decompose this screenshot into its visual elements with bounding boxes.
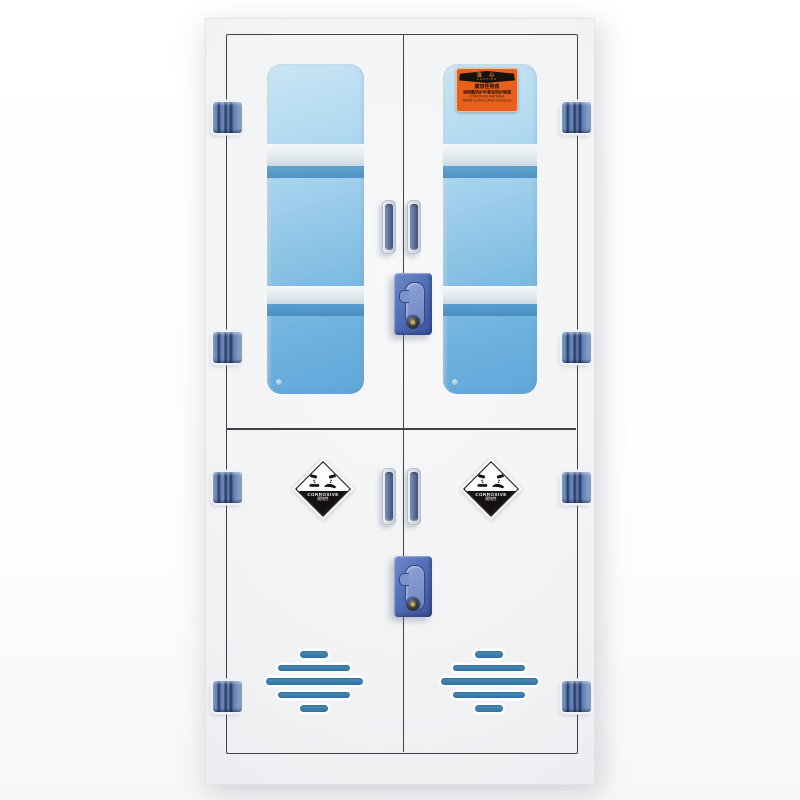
vent-slot	[441, 678, 538, 685]
vent-slot	[453, 665, 525, 672]
corrosive-hazard-label-left: CORROSIVE 腐蚀性	[292, 458, 354, 520]
shelf-edge	[267, 286, 364, 304]
hinge-left-3-icon	[213, 472, 242, 503]
shelf-edge	[443, 144, 537, 166]
shelf-shadow	[443, 304, 537, 316]
hinge-left-4-icon	[213, 681, 242, 712]
hinge-right-4-icon	[562, 681, 591, 712]
hinge-right-2-icon	[562, 332, 591, 363]
upper-right-door-window	[443, 64, 537, 394]
caution-banner: 当 心 CAUTION	[459, 71, 515, 83]
vent-slot	[475, 705, 503, 712]
lock-cylinder-icon	[407, 316, 420, 329]
lock-cylinder-icon	[407, 598, 420, 611]
caution-text-block: 腐蚀性物质 请佩戴防护手套和防护眼镜 CORROSIVE MATERIAL WE…	[459, 83, 515, 109]
hinge-left-1-icon	[213, 102, 242, 133]
caution-line-4: WEAR GLOVES AND GOGGLES	[457, 99, 517, 103]
shelf-shadow	[267, 166, 364, 178]
label-face: CORROSIVE 腐蚀性	[465, 463, 518, 516]
label-black-band: CORROSIVE 腐蚀性	[465, 491, 518, 516]
vent-slots-right	[439, 651, 539, 712]
shelf-edge	[267, 144, 364, 166]
vent-slot	[300, 705, 328, 712]
vent-slot	[278, 692, 350, 699]
upper-right-door-handle	[407, 200, 421, 254]
upper-left-door-window	[267, 64, 364, 394]
caution-warning-sticker: 当 心 CAUTION 腐蚀性物质 请佩戴防护手套和防护眼镜 CORROSIVE…	[456, 68, 518, 112]
hinge-right-3-icon	[562, 472, 591, 503]
glass-fastener-dot	[276, 379, 282, 385]
vent-slot	[278, 665, 350, 672]
chemical-storage-cabinet: 当 心 CAUTION 腐蚀性物质 请佩戴防护手套和防护眼镜 CORROSIVE…	[205, 18, 595, 785]
product-photo-background: 当 心 CAUTION 腐蚀性物质 请佩戴防护手套和防护眼镜 CORROSIVE…	[0, 0, 800, 800]
vent-slot	[475, 651, 503, 658]
label-black-band: CORROSIVE 腐蚀性	[297, 491, 350, 516]
lower-left-door-handle	[382, 468, 396, 525]
vent-slot	[266, 678, 363, 685]
shelf-shadow	[267, 304, 364, 316]
upper-door-lock	[394, 273, 432, 335]
vent-slot	[300, 651, 328, 658]
corrosion-pictogram-icon	[306, 474, 340, 489]
shelf-edge	[443, 286, 537, 304]
corrosion-pictogram-icon	[474, 474, 508, 489]
shelf-shadow	[443, 166, 537, 178]
corrosive-hazard-label-right: CORROSIVE 腐蚀性	[460, 458, 522, 520]
lower-right-door-handle	[407, 468, 421, 525]
vent-slots-left	[264, 651, 364, 712]
glass-fastener-dot	[452, 379, 458, 385]
vent-slot	[453, 692, 525, 699]
caution-sticker-inner: 当 心 CAUTION 腐蚀性物质 请佩戴防护手套和防护眼镜 CORROSIVE…	[459, 71, 515, 109]
upper-left-door-handle	[382, 200, 396, 254]
hinge-right-1-icon	[562, 102, 591, 133]
hinge-left-2-icon	[213, 332, 242, 363]
caution-banner-en: CAUTION	[460, 78, 515, 81]
lower-door-lock	[394, 556, 432, 617]
center-door-seam	[403, 34, 405, 752]
upper-lower-door-divider	[226, 428, 576, 430]
label-face: CORROSIVE 腐蚀性	[297, 463, 350, 516]
